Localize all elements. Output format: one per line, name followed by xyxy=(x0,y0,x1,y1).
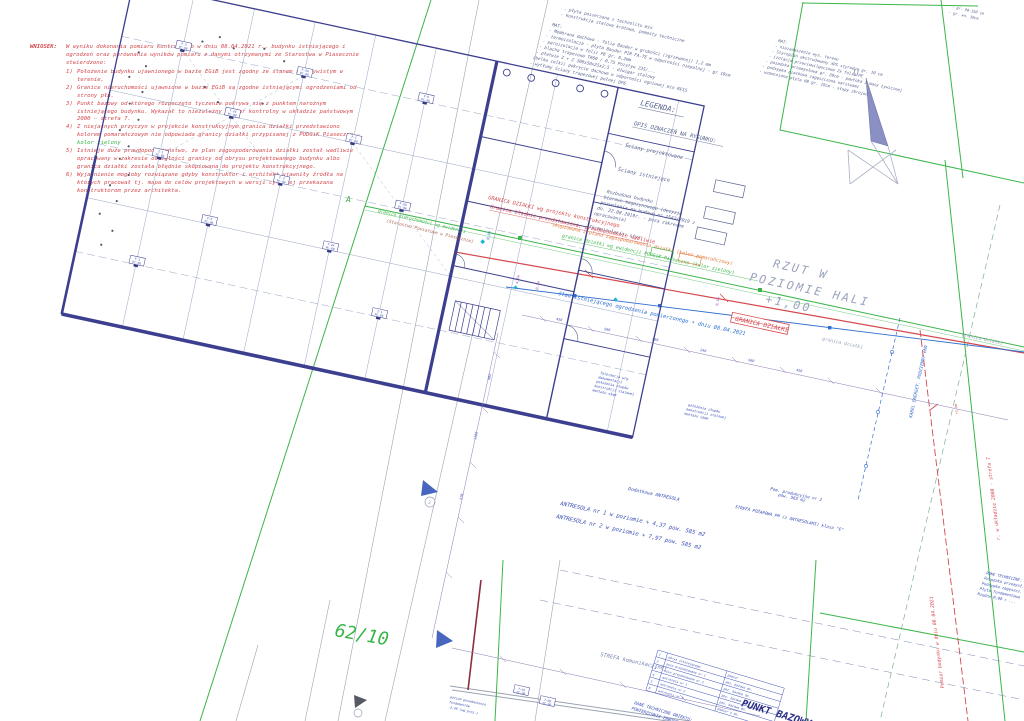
dane-techniczne-obiektu: DANE TECHNICZNE OBIEKTU: POWIERZCHNIA ZA… xyxy=(631,700,693,721)
legend-entry-1: Ściany projektowane xyxy=(624,142,683,161)
corner-spec-fragments: - gr. 90-350 cm - gr. wn. 30cm xyxy=(949,5,986,22)
svg-text:450: 450 xyxy=(796,368,803,373)
parcel-number: 62/10 xyxy=(333,620,390,650)
strefa-dashed-lines xyxy=(540,570,1024,700)
legend-swatch-extension2 xyxy=(695,227,727,245)
punkt-bazowy-label: PUNKT BAZOWY xyxy=(740,698,813,721)
svg-text:450: 450 xyxy=(556,317,563,322)
plan-title: RZUT W POZIOMIE HALI +1,00 xyxy=(745,252,875,327)
svg-text:570: 570 xyxy=(459,493,464,500)
svg-text:1185: 1185 xyxy=(473,431,479,440)
road-lines xyxy=(236,0,690,721)
green-boundary-lines xyxy=(200,0,1024,721)
site-plan-page: WNIOSEK: W wyniku dokonania pomiaru kont… xyxy=(0,0,1024,721)
legend-title: LEGENDA: xyxy=(640,98,677,114)
svg-text:4: 4 xyxy=(652,673,655,677)
strefa-pozarowa-label: STREFA POŻAROWA PM (z ANTRESOLAMI) klasa… xyxy=(735,504,844,532)
north-arrow-u-glyph: U xyxy=(853,68,860,79)
section-arrow-2 xyxy=(436,630,453,648)
svg-text:2: 2 xyxy=(428,500,431,505)
svg-text:0,9m: 0,9m xyxy=(486,230,492,240)
roof-spec-block: - płyta poszerzana z technolitu mix - ko… xyxy=(529,2,738,109)
svg-text:5: 5 xyxy=(650,679,653,683)
svg-text:1: 1 xyxy=(658,652,661,656)
tolerance-note-2: położenia słupów konstrukcji stalowej mo… xyxy=(683,402,728,424)
foundation-level-note: poziom posadowienia fundamentów -3,20 (w… xyxy=(448,695,487,715)
survey-dots xyxy=(92,19,287,276)
dane-techniczne-right: DANE TECHNICZNE: Posadzka przemysł. Pods… xyxy=(977,569,1024,605)
boundary-orange-note: skopiowana z planu zagospodarowania dzia… xyxy=(552,221,734,267)
pomiar-budynku-label: Pomiar budynku w dniu 08.04.2021 xyxy=(929,596,946,689)
legend-swatch-extension1 xyxy=(704,206,736,224)
granica-small-label: granica działki xyxy=(822,336,864,351)
svg-text:pomiar: pomiar xyxy=(727,673,739,680)
svg-text:4,5m: 4,5m xyxy=(515,274,521,284)
legend-swatch-existing xyxy=(713,180,745,198)
uklad-2000-label: r. w układzie 2000 - strefa 7 xyxy=(986,457,1002,541)
svg-text:580: 580 xyxy=(604,327,611,332)
dimension-values: 450 580 560 240 580 450 602 1185 570 xyxy=(459,317,803,500)
antresola-extra-label: Dodatkowa ANTRESOLA xyxy=(627,486,681,503)
svg-text:6: 6 xyxy=(648,686,651,690)
svg-text:PC-06: PC-06 xyxy=(542,701,552,707)
tolerance-note: Tolerancja w/g dokumentacji położenia sł… xyxy=(591,370,638,401)
svg-text:0,5m: 0,5m xyxy=(535,280,541,290)
north-tail xyxy=(848,141,898,184)
footing-labels: F-3PC-06 F-5APC-06 F-6PC-06 T-24PC-08 F-… xyxy=(129,40,434,319)
section-arrow-1 xyxy=(421,480,438,496)
svg-text:PC-06: PC-06 xyxy=(516,690,526,696)
foundation-spec-block: MAT: - niezadaszenie wys. terenu - Styro… xyxy=(759,36,908,104)
boundary-corner-a-label: A xyxy=(345,195,351,204)
east-tick-label: +1,0m xyxy=(954,404,959,415)
site-plan-svg: F-3PC-06 F-5APC-06 F-6PC-06 T-24PC-08 F-… xyxy=(0,0,1024,721)
svg-text:240: 240 xyxy=(700,348,707,353)
svg-text:2: 2 xyxy=(656,659,659,663)
svg-text:0,5m: 0,5m xyxy=(715,296,721,306)
section-arrow-3 xyxy=(354,695,367,708)
svg-text:580: 580 xyxy=(748,358,755,363)
